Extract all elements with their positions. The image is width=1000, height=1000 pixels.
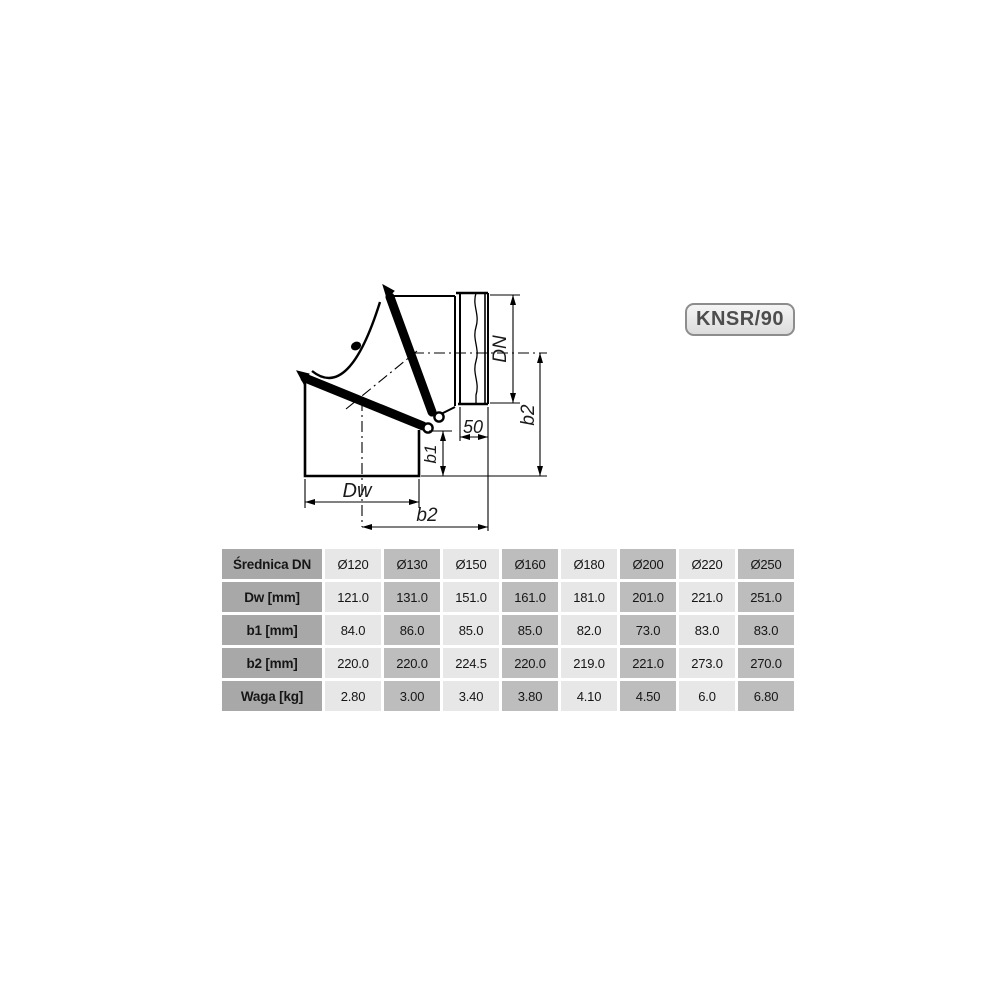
- segment-arc: [312, 302, 380, 378]
- table-cell: 220.0: [325, 648, 381, 678]
- upper-clamp-bar: [390, 297, 432, 412]
- table-cell: 6.80: [738, 681, 794, 711]
- table-cell: 181.0: [561, 582, 617, 612]
- table-cell: 3.00: [384, 681, 440, 711]
- table-cell: 270.0: [738, 648, 794, 678]
- table-cell: 201.0: [620, 582, 676, 612]
- table-cell: 251.0: [738, 582, 794, 612]
- table-cell: 73.0: [620, 615, 676, 645]
- spec-table: Średnica DNØ120Ø130Ø150Ø160Ø180Ø200Ø220Ø…: [222, 549, 794, 711]
- table-cell: 4.50: [620, 681, 676, 711]
- rotating-segment: [312, 302, 380, 378]
- table-cell: 82.0: [561, 615, 617, 645]
- table-cell: 3.80: [502, 681, 558, 711]
- table-cell: Ø200: [620, 549, 676, 579]
- lower-clamp-bar: [305, 378, 423, 426]
- b2-right-label: b2: [518, 404, 539, 426]
- table-cell: 121.0: [325, 582, 381, 612]
- dw-label: Dw: [343, 480, 373, 502]
- table-cell: 86.0: [384, 615, 440, 645]
- dimension-socket-depth: 50: [460, 407, 488, 531]
- table-cell: Ø250: [738, 549, 794, 579]
- row-label: Średnica DN: [222, 549, 322, 579]
- b1-label: b1: [421, 445, 440, 464]
- center-lines: [346, 351, 547, 527]
- table-cell: 83.0: [738, 615, 794, 645]
- dn-label: DN: [490, 335, 511, 363]
- row-label: b1 [mm]: [222, 615, 322, 645]
- table-cell: 220.0: [502, 648, 558, 678]
- table-cell: 219.0: [561, 648, 617, 678]
- table-cell: Ø120: [325, 549, 381, 579]
- break-line: [475, 293, 477, 404]
- table-cell: 221.0: [620, 648, 676, 678]
- b2-bottom-label: b2: [416, 505, 438, 526]
- table-cell: 6.0: [679, 681, 735, 711]
- table-cell: 220.0: [384, 648, 440, 678]
- table-cell: 2.80: [325, 681, 381, 711]
- table-cell: 85.0: [443, 615, 499, 645]
- table-cell: Ø150: [443, 549, 499, 579]
- hinge-circle: [434, 412, 443, 421]
- dimension-b1: b1: [421, 431, 452, 476]
- table-cell: 161.0: [502, 582, 558, 612]
- table-cell: Ø180: [561, 549, 617, 579]
- table-cell: 83.0: [679, 615, 735, 645]
- table-cell: 85.0: [502, 615, 558, 645]
- row-label: Dw [mm]: [222, 582, 322, 612]
- socket-depth-label: 50: [463, 417, 483, 437]
- dimension-dn: DN: [490, 295, 520, 403]
- table-cell: Ø220: [679, 549, 735, 579]
- table-cell: 4.10: [561, 681, 617, 711]
- dimension-dw: Dw: [305, 479, 419, 508]
- product-code-badge: KNSR/90: [685, 303, 795, 336]
- table-cell: 151.0: [443, 582, 499, 612]
- table-cell: 3.40: [443, 681, 499, 711]
- dimension-b2-bottom: b2: [362, 505, 488, 530]
- table-cell: 273.0: [679, 648, 735, 678]
- table-cell: 221.0: [679, 582, 735, 612]
- table-cell: 224.5: [443, 648, 499, 678]
- table-cell: 84.0: [325, 615, 381, 645]
- table-cell: Ø160: [502, 549, 558, 579]
- page: DN b2 50 b1: [0, 0, 1000, 1000]
- table-cell: 131.0: [384, 582, 440, 612]
- table-cell: Ø130: [384, 549, 440, 579]
- row-label: Waga [kg]: [222, 681, 322, 711]
- row-label: b2 [mm]: [222, 648, 322, 678]
- elbow-diagram: DN b2 50 b1: [0, 0, 1000, 1000]
- hinge-rivets: [423, 412, 443, 432]
